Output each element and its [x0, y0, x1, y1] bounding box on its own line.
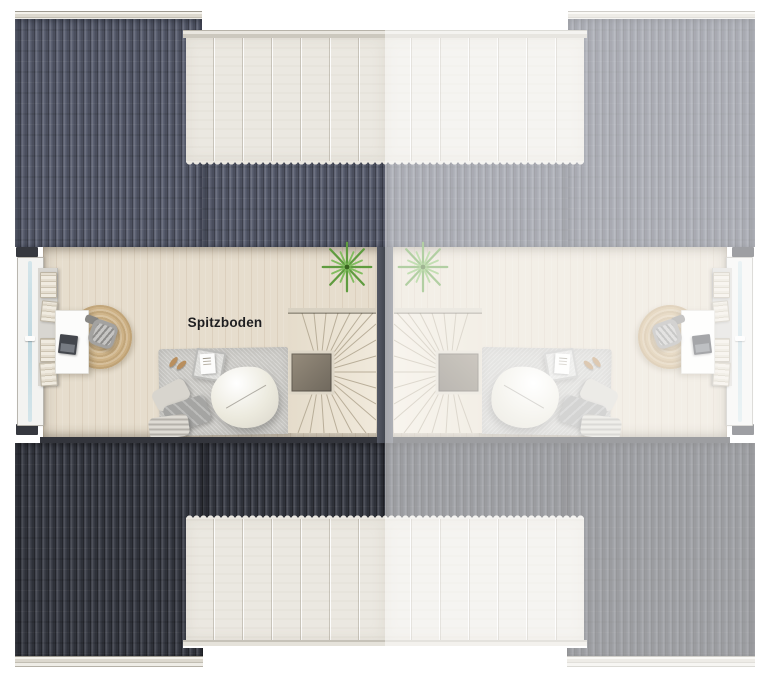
stairwell-void — [437, 352, 480, 393]
party-wall — [377, 247, 385, 443]
stairwell-void — [290, 352, 333, 393]
book-stack — [713, 272, 730, 298]
dormer-top-cap — [385, 30, 587, 38]
dormer-roof-top — [186, 38, 385, 161]
roof-bottom-main — [15, 443, 203, 656]
winder-staircase — [394, 308, 482, 433]
party-wall — [385, 247, 393, 443]
stair-handrail — [394, 308, 482, 313]
roof-top-main — [568, 19, 755, 247]
office-chair — [649, 314, 685, 354]
unit-right: Spitzboden — [385, 0, 755, 681]
dormer-roof-bottom — [385, 519, 584, 640]
office-chair — [85, 314, 121, 354]
laptop — [692, 334, 712, 355]
gable-wall-stub-top — [732, 247, 754, 257]
window-handle — [25, 336, 35, 341]
potted-plant — [319, 239, 375, 295]
ridge-cap-bottom — [15, 656, 203, 667]
book-stack — [713, 338, 730, 362]
unit-left: Spitzboden — [15, 0, 385, 681]
dormer-roof-top — [385, 38, 584, 161]
magazine — [554, 353, 570, 374]
magazine — [200, 353, 216, 374]
window-glass — [28, 261, 32, 422]
roof-top-main — [15, 19, 202, 247]
potted-plant — [395, 239, 451, 295]
winder-staircase — [288, 308, 376, 433]
room-label: Spitzboden — [170, 315, 280, 330]
dormer-bottom-base — [385, 640, 587, 648]
dormer-bottom-base — [183, 640, 385, 648]
book-stack — [40, 272, 57, 298]
dormer-top-cap — [183, 30, 385, 38]
gable-wall-stub-top — [16, 247, 38, 257]
stair-handrail — [288, 308, 376, 313]
laptop — [58, 334, 78, 355]
dormer-roof-bottom — [186, 519, 385, 640]
window-handle — [735, 336, 745, 341]
roof-bottom-main — [567, 443, 755, 656]
floorplan-canvas: Spitzboden — [0, 0, 775, 681]
ridge-cap-bottom — [567, 656, 755, 667]
window-glass — [738, 261, 742, 422]
